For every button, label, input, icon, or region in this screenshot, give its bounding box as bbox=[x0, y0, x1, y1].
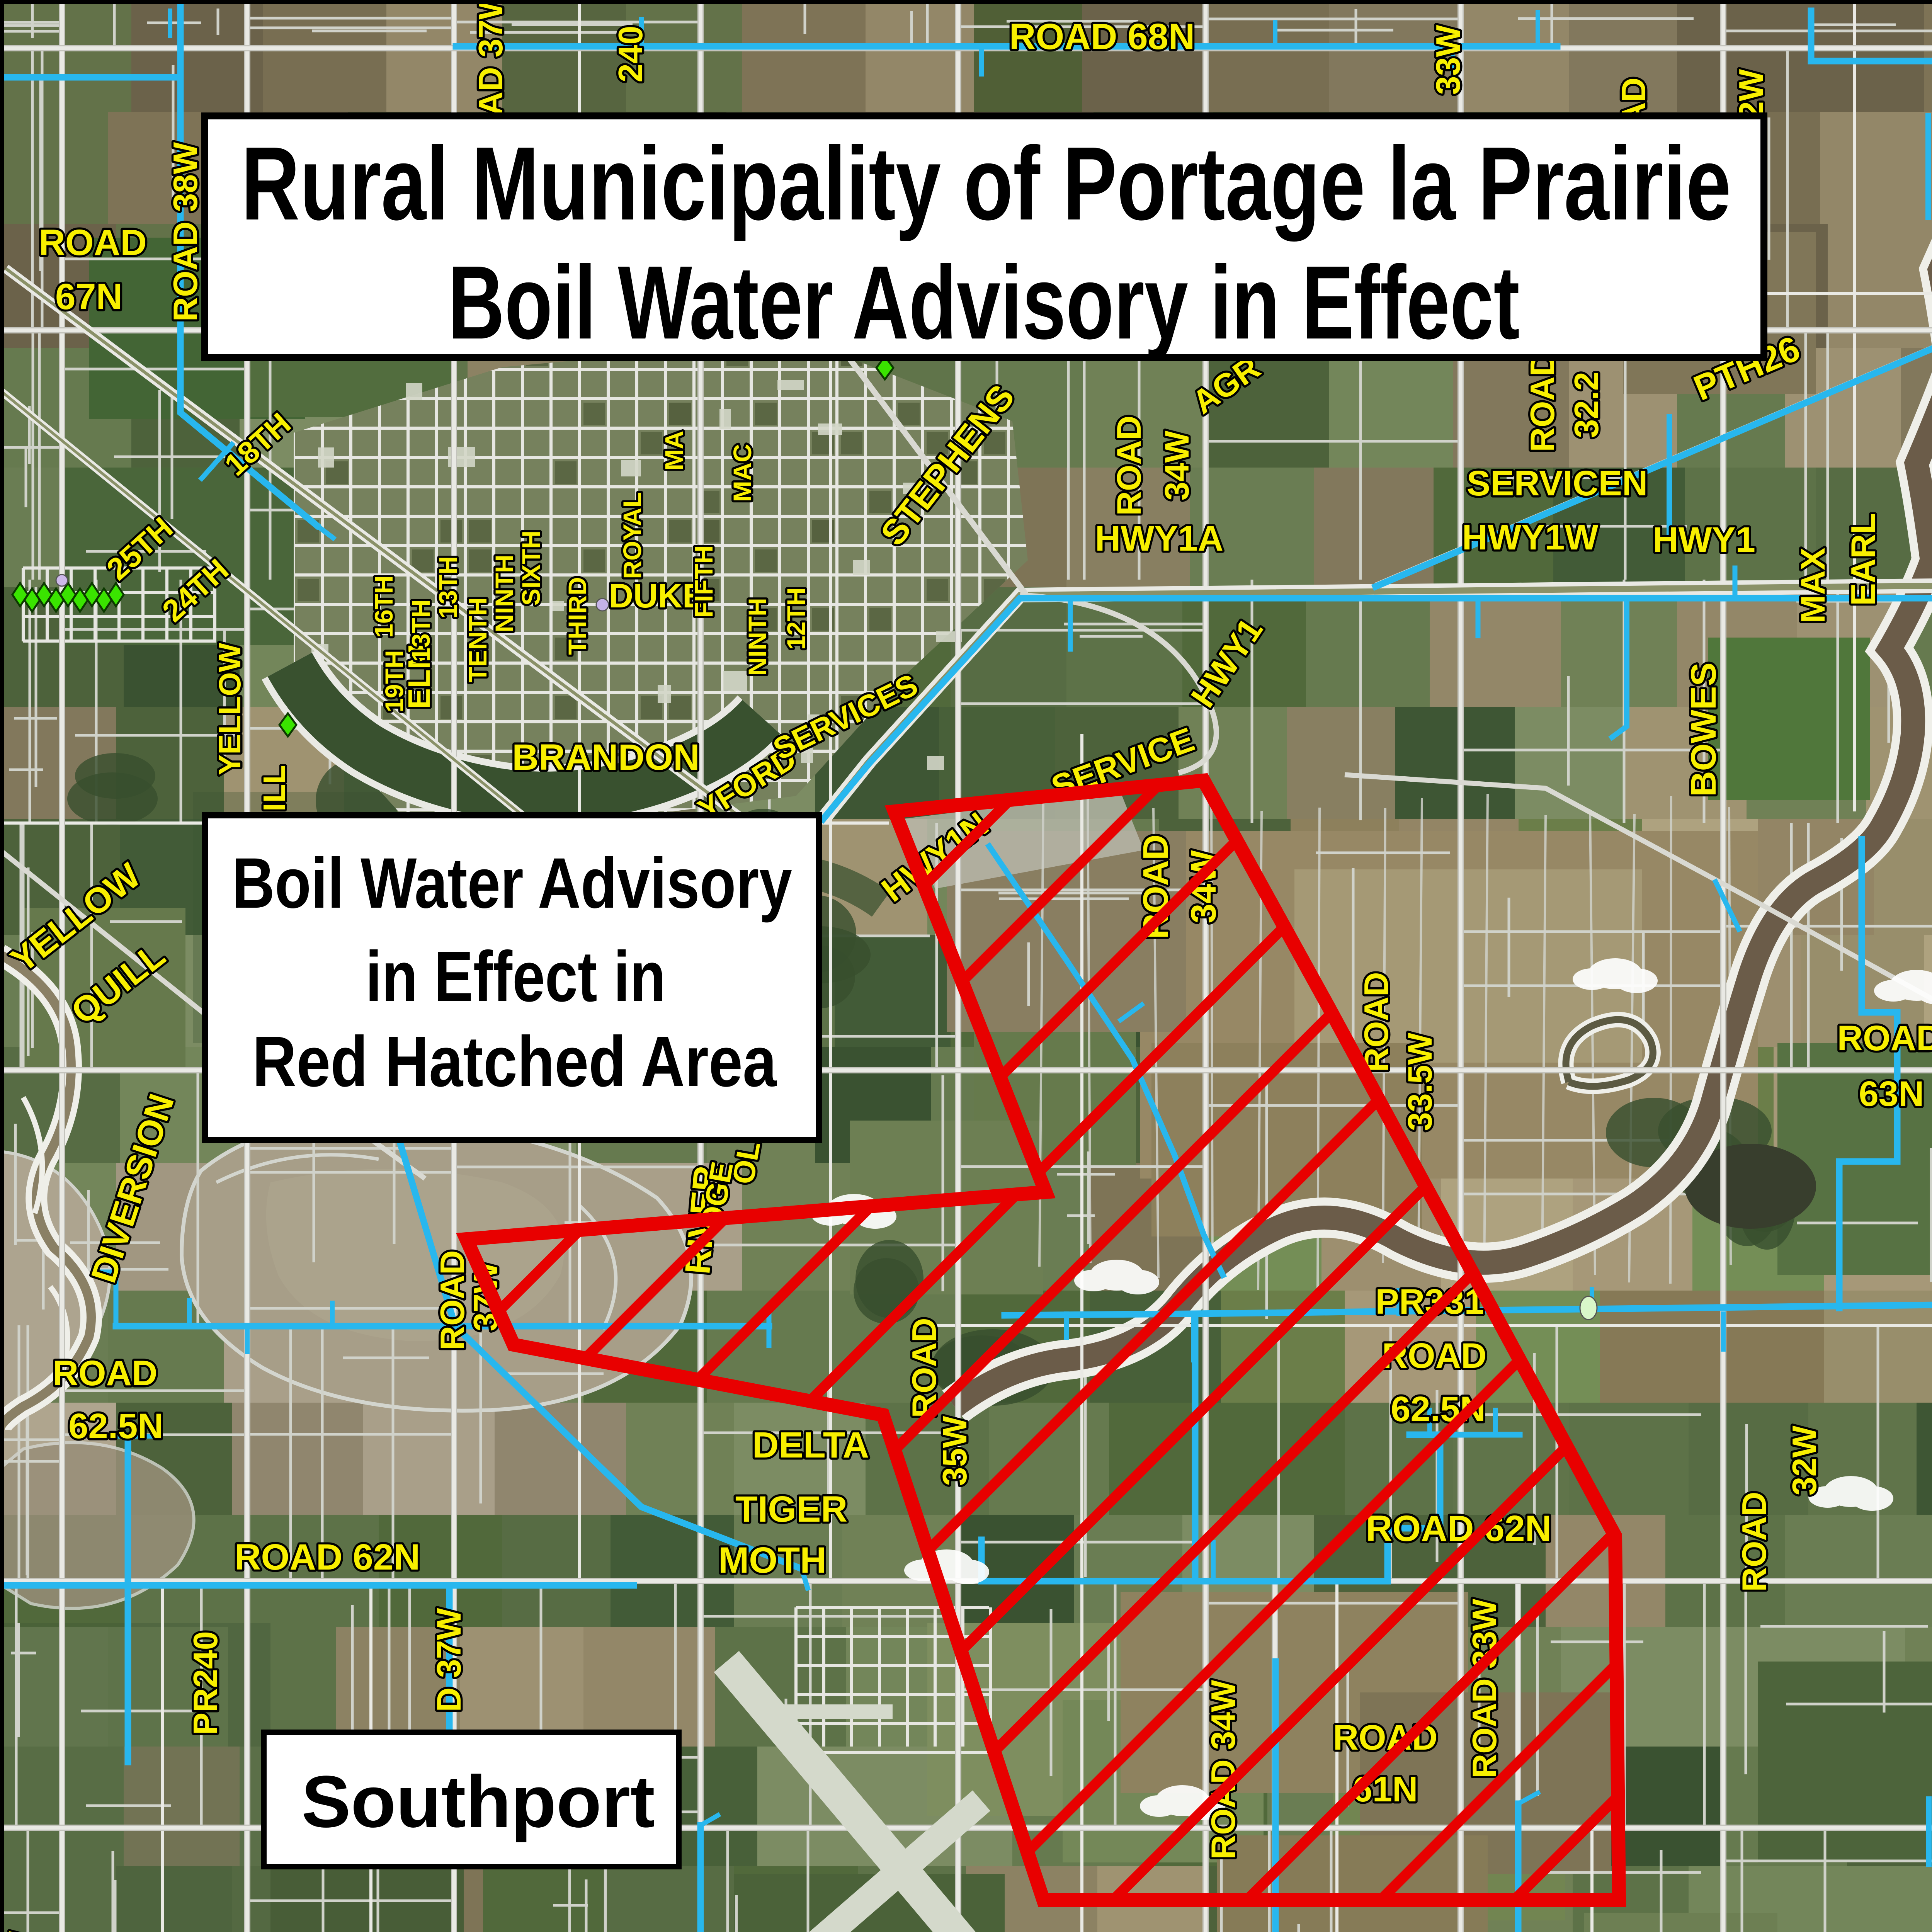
svg-text:ROAD: ROAD bbox=[39, 222, 147, 263]
svg-text:ROAD 68N: ROAD 68N bbox=[1009, 16, 1195, 57]
svg-text:Southport: Southport bbox=[301, 1761, 655, 1843]
svg-text:63N: 63N bbox=[1859, 1074, 1924, 1114]
svg-text:YELLOW: YELLOW bbox=[213, 643, 247, 775]
svg-text:TIGER: TIGER bbox=[735, 1489, 847, 1530]
svg-text:ROAD: ROAD bbox=[1735, 1492, 1773, 1592]
svg-text:12TH: 12TH bbox=[782, 587, 810, 650]
svg-text:ROYAL: ROYAL bbox=[618, 492, 646, 579]
svg-text:ROAD: ROAD bbox=[433, 1250, 471, 1350]
svg-text:ROAD: ROAD bbox=[53, 1354, 158, 1393]
svg-text:Boil Water Advisory: Boil Water Advisory bbox=[232, 844, 792, 923]
svg-text:13TH: 13TH bbox=[434, 556, 462, 618]
svg-text:32W: 32W bbox=[1785, 1426, 1823, 1496]
svg-text:62.5N: 62.5N bbox=[68, 1406, 163, 1446]
svg-text:TENTH: TENTH bbox=[463, 597, 492, 682]
svg-text:MAC: MAC bbox=[728, 444, 757, 502]
svg-text:33.5W: 33.5W bbox=[1401, 1033, 1439, 1131]
svg-text:33W: 33W bbox=[1429, 25, 1467, 95]
svg-text:13TH: 13TH bbox=[406, 599, 435, 662]
svg-text:MAX: MAX bbox=[1794, 548, 1832, 623]
svg-text:MOTH: MOTH bbox=[718, 1540, 827, 1581]
svg-text:NINTH: NINTH bbox=[743, 598, 772, 676]
svg-text:BRANDON: BRANDON bbox=[512, 737, 700, 778]
svg-text:34W: 34W bbox=[1158, 431, 1196, 501]
svg-text:16TH: 16TH bbox=[369, 575, 398, 638]
svg-text:35W: 35W bbox=[935, 1416, 974, 1486]
svg-text:ROAD: ROAD bbox=[1837, 1019, 1932, 1058]
svg-text:ROAD 33W: ROAD 33W bbox=[1465, 1599, 1503, 1779]
svg-text:Rural Municipality of Portage: Rural Municipality of Portage la Prairie bbox=[241, 126, 1731, 242]
svg-text:ROAD: ROAD bbox=[1523, 352, 1561, 452]
svg-text:HWY1W: HWY1W bbox=[1462, 518, 1599, 557]
svg-text:Red Hatched Area: Red Hatched Area bbox=[252, 1022, 777, 1102]
svg-text:EARL: EARL bbox=[1844, 513, 1882, 606]
svg-text:MA: MA bbox=[660, 431, 688, 471]
svg-text:240: 240 bbox=[611, 26, 650, 83]
svg-text:ILL: ILL bbox=[257, 765, 291, 811]
svg-text:32.2: 32.2 bbox=[1567, 372, 1605, 438]
svg-text:NINTH: NINTH bbox=[490, 554, 519, 633]
svg-text:ROAD 38W: ROAD 38W bbox=[166, 142, 204, 322]
svg-text:ROAD 62N: ROAD 62N bbox=[235, 1537, 420, 1578]
svg-text:HWY1: HWY1 bbox=[1653, 520, 1755, 560]
svg-text:THIRD: THIRD bbox=[563, 577, 592, 655]
svg-text:in Effect in: in Effect in bbox=[366, 937, 666, 1017]
svg-text:BOWES: BOWES bbox=[1684, 662, 1723, 797]
svg-text:SIXTH: SIXTH bbox=[517, 531, 545, 605]
svg-text:Boil Water Advisory in Effect: Boil Water Advisory in Effect bbox=[448, 245, 1520, 361]
svg-text:ROAD 62N: ROAD 62N bbox=[1366, 1508, 1551, 1549]
svg-text:SERVICEN: SERVICEN bbox=[1467, 464, 1648, 503]
svg-text:19TH: 19TH bbox=[380, 650, 408, 712]
svg-text:DELTA: DELTA bbox=[752, 1425, 869, 1466]
svg-text:ROAD: ROAD bbox=[1110, 415, 1148, 515]
svg-text:FIFTH: FIFTH bbox=[689, 546, 718, 618]
svg-text:PR240: PR240 bbox=[186, 1631, 224, 1735]
svg-text:D 37W: D 37W bbox=[430, 1608, 468, 1712]
svg-text:HWY1A: HWY1A bbox=[1095, 519, 1223, 558]
svg-text:67N: 67N bbox=[55, 276, 122, 317]
